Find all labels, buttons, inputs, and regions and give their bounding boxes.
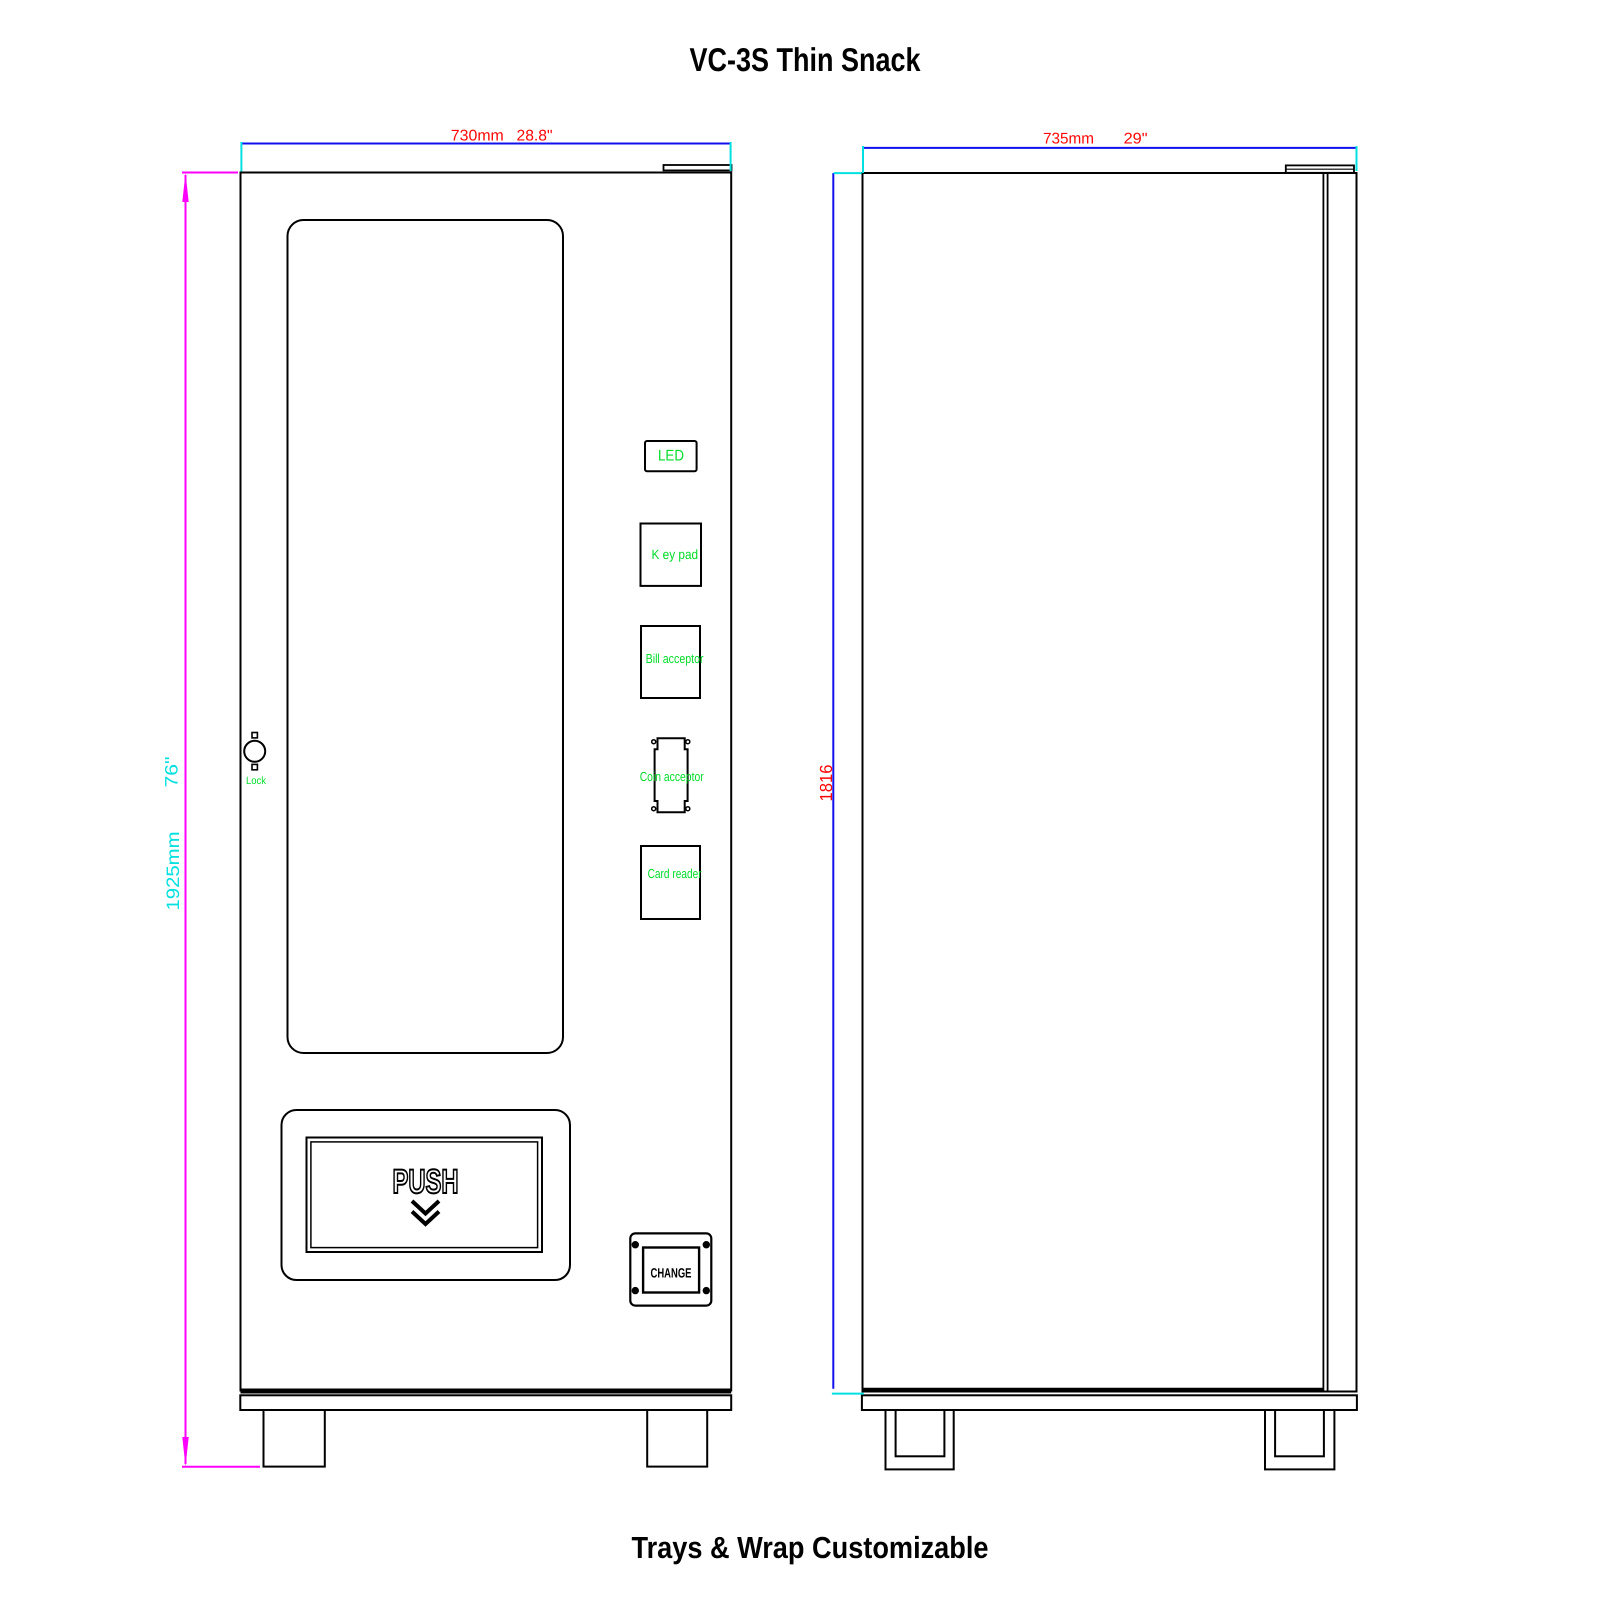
svg-text:28.8": 28.8" — [517, 128, 553, 145]
svg-text:29": 29" — [1124, 130, 1148, 147]
svg-text:Lock: Lock — [246, 775, 267, 787]
svg-text:735mm: 735mm — [1043, 130, 1094, 147]
svg-text:LED: LED — [658, 448, 684, 465]
svg-text:1816: 1816 — [816, 765, 836, 802]
svg-text:Coin acceptor: Coin acceptor — [640, 769, 705, 784]
svg-text:CHANGE: CHANGE — [651, 1266, 692, 1281]
svg-text:Card reader: Card reader — [648, 866, 703, 881]
svg-text:76": 76" — [162, 757, 182, 788]
svg-text:K ey pad: K ey pad — [652, 547, 699, 562]
svg-text:PUSH: PUSH — [393, 1163, 459, 1201]
svg-text:VC-3S Thin Snack: VC-3S Thin Snack — [690, 41, 922, 78]
svg-text:1925mm: 1925mm — [163, 832, 183, 911]
svg-text:Bill acceptor: Bill acceptor — [646, 651, 705, 666]
svg-text:Trays & Wrap Customizable: Trays & Wrap Customizable — [632, 1531, 989, 1565]
svg-text:730mm: 730mm — [451, 128, 504, 145]
